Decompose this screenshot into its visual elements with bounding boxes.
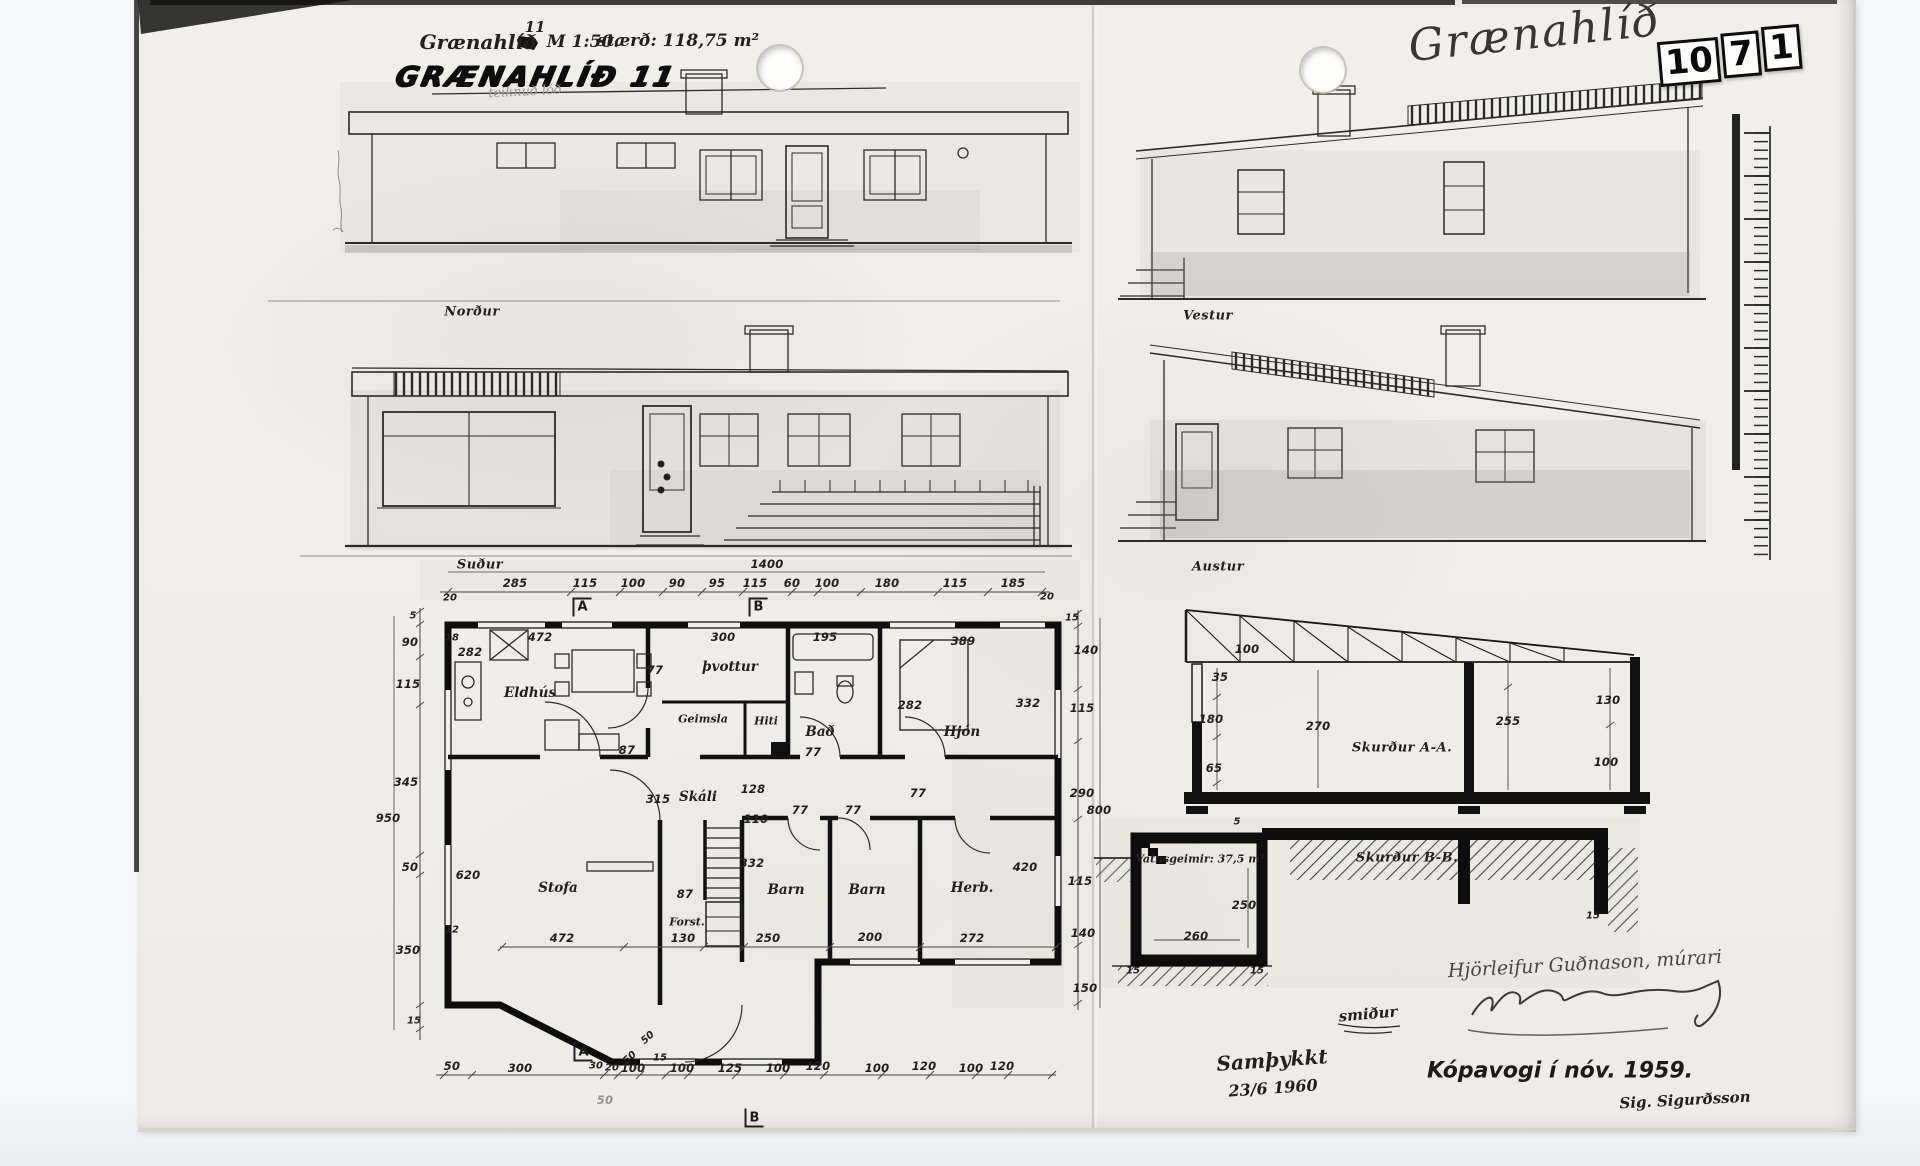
east-elevation-label: Austur: [1192, 560, 1244, 575]
dim-label: 250: [1232, 898, 1257, 912]
dim-label: 115: [943, 576, 968, 590]
section-aa-drawing: [1184, 610, 1650, 814]
room-label-child2: Barn: [848, 882, 885, 898]
plan-stairs: [705, 828, 742, 946]
dim-label: 77: [647, 663, 663, 677]
room-label-living: Stofa: [538, 880, 578, 896]
dim-label: 35: [1212, 670, 1228, 684]
dim-label: 12: [445, 925, 459, 936]
dim-label: 290: [1070, 786, 1095, 800]
dim-label: 332: [740, 856, 765, 870]
dim-label: 130: [1596, 693, 1621, 707]
dim-label: 472: [550, 931, 575, 945]
dim-label: 65: [1206, 761, 1222, 775]
room-label-bath: Bað: [805, 724, 834, 740]
dim-label: 87: [677, 887, 693, 901]
dim-label: 100: [621, 576, 646, 590]
dim-label: 115: [743, 576, 768, 590]
dim-label: 5: [410, 611, 417, 622]
west-elevation-label: Vestur: [1183, 309, 1233, 324]
south-elevation-label: Suður: [457, 558, 503, 573]
hole-punch: [758, 46, 802, 90]
pencil-dim-label: 50: [597, 1093, 613, 1107]
section-marker-a-bottom: A: [573, 1043, 592, 1062]
dim-label: 125: [718, 1061, 743, 1075]
dim-label: 195: [813, 630, 838, 644]
hole-punch: [1301, 48, 1345, 92]
section-marker-b-top: B: [749, 598, 768, 617]
room-label-laundry: þvottur: [702, 659, 758, 675]
dim-label: 128: [741, 782, 766, 796]
dim-label: 950: [376, 811, 401, 825]
section-aa-label: Skurður A-A.: [1352, 741, 1452, 756]
dim-label: 18: [445, 633, 459, 644]
dim-label: 300: [711, 630, 736, 644]
dim-label: 120: [990, 1059, 1015, 1073]
dim-label: 77: [910, 786, 926, 800]
dim-label: 115: [396, 677, 421, 691]
dim-label: 200: [858, 930, 883, 944]
title-note-size: stærð: 118,75 m²: [597, 31, 759, 51]
stamp-digit-tile: 1: [1761, 24, 1802, 73]
dim-label: 150: [1073, 981, 1098, 995]
dim-label: 140: [1071, 926, 1096, 940]
stamp-digit-tile: 10: [1657, 37, 1722, 88]
dim-label: 100: [815, 576, 840, 590]
dim-label: 272: [960, 931, 985, 945]
dim-label: 20: [443, 593, 457, 604]
room-label-bedroom: Herb.: [951, 880, 994, 896]
section-marker-a-top: A: [572, 598, 591, 617]
dim-label: 30: [589, 1061, 603, 1072]
dim-label: 20: [1040, 592, 1054, 603]
dim-label: 282: [898, 698, 923, 712]
dim-label: 1400: [751, 557, 784, 571]
dim-label: 15: [1065, 613, 1079, 624]
dim-label: 255: [1496, 714, 1521, 728]
dim-label: 120: [912, 1059, 937, 1073]
dim-label: 77: [845, 803, 861, 817]
dim-label: 282: [458, 645, 483, 659]
dim-label: 90: [402, 635, 418, 649]
room-label-storage: Geimsla: [678, 713, 728, 726]
dim-label: 15: [1250, 966, 1264, 977]
dim-label: 180: [875, 576, 900, 590]
dim-label: 180: [1199, 712, 1224, 726]
dim-label: 800: [1087, 803, 1112, 817]
dim-label: 285: [503, 576, 528, 590]
room-label-master: Hjón: [944, 724, 980, 740]
dim-label: 15: [407, 1016, 421, 1027]
dim-label: 50: [444, 1059, 460, 1073]
dim-label: 270: [1306, 719, 1331, 733]
dim-label: 60: [784, 576, 800, 590]
dim-label: 110: [744, 812, 769, 826]
dim-label: 50: [402, 860, 418, 874]
dim-label: 77: [792, 803, 808, 817]
dim-label: 95: [709, 576, 725, 590]
dim-label: 77: [805, 745, 821, 759]
dim-label: 350: [396, 943, 421, 957]
dim-label: 100: [670, 1061, 695, 1075]
dim-label: 100: [766, 1061, 791, 1075]
dim-label: 15: [1126, 966, 1140, 977]
room-label-boiler: Hiti: [754, 715, 778, 728]
title-note-number: 11: [525, 18, 546, 36]
dim-label: 315: [646, 792, 671, 806]
dim-label: 389: [951, 634, 976, 648]
dim-label: 100: [1594, 755, 1619, 769]
water-tank-label: Vatnsgeimir: 37,5 m³: [1135, 853, 1264, 866]
dim-label: 20: [605, 1063, 619, 1074]
north-elevation-label: Norður: [444, 305, 499, 320]
dim-label: 250: [756, 931, 781, 945]
dim-label: 90: [669, 576, 685, 590]
dim-label: 5: [1234, 817, 1241, 828]
dim-label: 87: [619, 743, 635, 757]
dim-label: 140: [1074, 643, 1099, 657]
dim-label: 472: [528, 630, 553, 644]
dim-label: 260: [1184, 929, 1209, 943]
dim-label: 115: [1070, 701, 1095, 715]
place-date-lettering: Kópavogi í nóv. 1959.: [1427, 1059, 1693, 1084]
room-label-hall: Skáli: [679, 789, 717, 805]
dim-label: 100: [865, 1061, 890, 1075]
dim-label: 300: [508, 1061, 533, 1075]
dim-label: 100: [1235, 642, 1260, 656]
dim-label: 130: [671, 931, 696, 945]
room-label-child1: Barn: [767, 882, 804, 898]
dim-label: 345: [394, 775, 419, 789]
room-label-foyer: Forst.: [669, 916, 704, 929]
title-note-name: Grænahlíð: [420, 30, 537, 54]
dim-label: 15: [1586, 911, 1600, 922]
section-bb-label: Skurður B-B.: [1356, 851, 1458, 866]
measuring-scale-ruler: [1732, 114, 1770, 560]
stamp-digit-tile: 7: [1721, 30, 1762, 79]
dim-label: 120: [806, 1059, 831, 1073]
dim-label: 332: [1016, 696, 1041, 710]
dim-label: 15: [653, 1053, 667, 1064]
dim-label: 420: [1013, 860, 1038, 874]
section-marker-b-bottom: B: [745, 1109, 764, 1128]
dim-label: 185: [1001, 576, 1026, 590]
room-label-kitchen: Eldhús: [504, 685, 556, 701]
dim-label: 100: [959, 1061, 984, 1075]
dim-label: 620: [456, 868, 481, 882]
plan-door-swings: [545, 688, 990, 1062]
dim-label: 115: [1068, 874, 1093, 888]
dim-label: 115: [573, 576, 598, 590]
scanned-blueprint-screenshot: Grænahlíð 11 M 1:50. stærð: 118,75 m² GR…: [0, 0, 1920, 1166]
